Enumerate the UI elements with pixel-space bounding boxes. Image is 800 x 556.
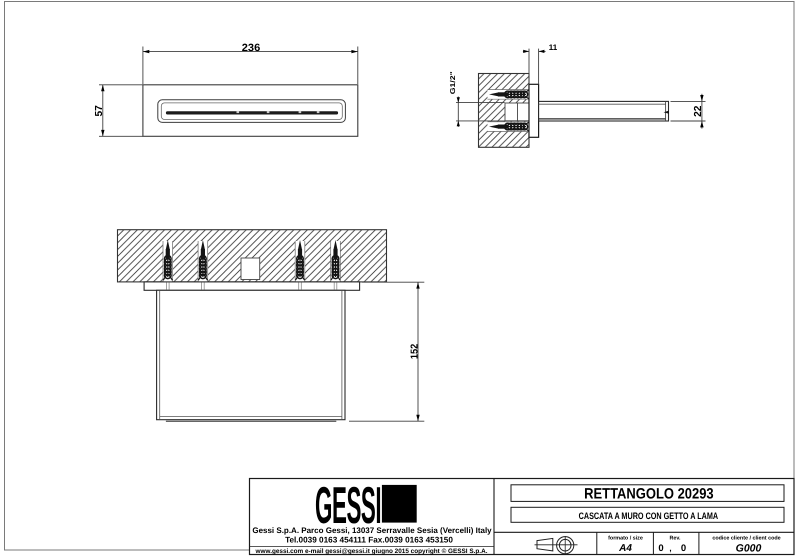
svg-text:152: 152 xyxy=(410,343,421,359)
svg-text:CASCATA A MURO CON GETTO A LAM: CASCATA A MURO CON GETTO A LAMA xyxy=(579,510,719,521)
svg-text:Gessi S.p.A. Parco Gessi,: Gessi S.p.A. Parco Gessi, 13037 Serraval… xyxy=(252,526,492,535)
svg-text:G000: G000 xyxy=(736,542,762,554)
svg-text:codice cliente / client co: codice cliente / client code xyxy=(712,536,780,542)
svg-text:22: 22 xyxy=(693,105,704,117)
svg-text:0: 0 xyxy=(658,543,663,554)
svg-text:236: 236 xyxy=(242,42,261,54)
svg-text:Rev.: Rev. xyxy=(670,536,681,542)
svg-text:formato / size: formato / size xyxy=(608,536,643,542)
svg-text:57: 57 xyxy=(94,105,105,117)
svg-text:,: , xyxy=(669,544,671,553)
svg-text:0: 0 xyxy=(681,543,686,554)
svg-text:G1/2": G1/2" xyxy=(449,71,457,94)
svg-text:Tel.0039 0163 454111 Fax.00: Tel.0039 0163 454111 Fax.0039 0163 45315… xyxy=(285,536,453,545)
svg-text:11: 11 xyxy=(549,43,558,52)
svg-text:RETTANGOLO 20293: RETTANGOLO 20293 xyxy=(584,486,714,503)
svg-text:www.gessi.com e-mail gessi@g: www.gessi.com e-mail gessi@gessi.it giug… xyxy=(255,548,488,555)
svg-text:A4: A4 xyxy=(618,543,632,554)
